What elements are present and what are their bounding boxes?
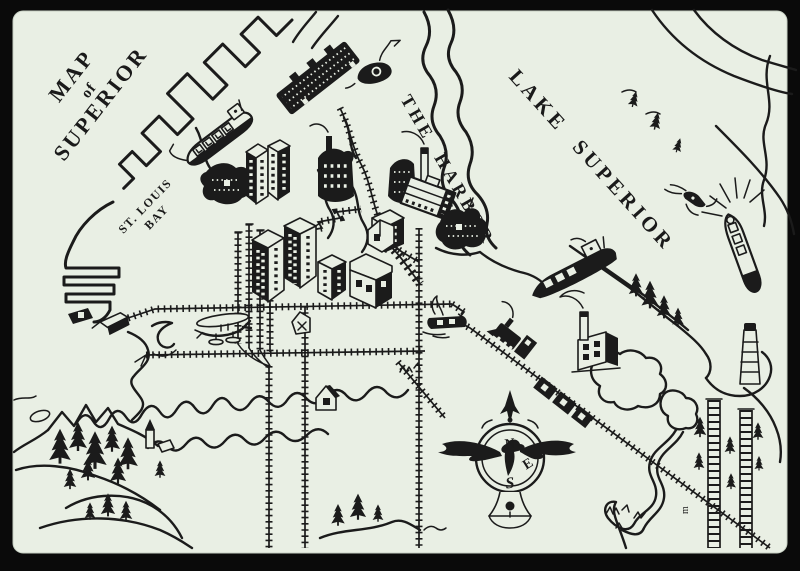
warehouse-slabs	[246, 140, 290, 204]
artist-mark: m	[680, 506, 691, 514]
compass-south: S	[505, 475, 516, 493]
map-page	[13, 11, 787, 553]
map-photo: MAP of SUPERIOR ST. LOUIS BAY THE HARBOR…	[0, 0, 800, 571]
compass-north: N	[504, 436, 516, 452]
